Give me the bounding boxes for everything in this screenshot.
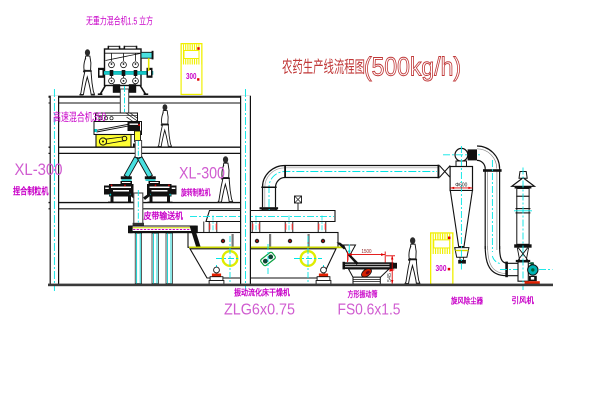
svg-text:FS0.6x1.5: FS0.6x1.5 bbox=[338, 302, 401, 319]
svg-text:捏合制粒机: 捏合制粒机 bbox=[13, 186, 49, 198]
svg-text:(500kg/h): (500kg/h) bbox=[364, 52, 461, 82]
svg-text:振动流化床干燥机: 振动流化床干燥机 bbox=[234, 287, 290, 298]
svg-text:无重力混合机1.5 立方: 无重力混合机1.5 立方 bbox=[86, 15, 153, 28]
svg-text:XL-300: XL-300 bbox=[15, 161, 63, 179]
svg-text:引风机: 引风机 bbox=[512, 295, 535, 305]
svg-text:方形振动筛: 方形振动筛 bbox=[348, 289, 378, 299]
svg-text:农药生产线流程图: 农药生产线流程图 bbox=[282, 58, 365, 77]
svg-text:545: 545 bbox=[387, 273, 393, 282]
svg-text:旋风除尘器: 旋风除尘器 bbox=[450, 296, 484, 306]
svg-text:Φ600: Φ600 bbox=[455, 183, 467, 189]
svg-text:高速混合机350: 高速混合机350 bbox=[53, 110, 106, 124]
svg-text:300: 300 bbox=[436, 264, 447, 273]
svg-text:1500: 1500 bbox=[362, 249, 372, 255]
svg-text:300: 300 bbox=[186, 72, 197, 81]
svg-text:皮带输送机: 皮带输送机 bbox=[143, 210, 183, 221]
svg-text:ZLG6x0.75: ZLG6x0.75 bbox=[224, 302, 295, 319]
svg-text:旋转制粒机: 旋转制粒机 bbox=[180, 188, 211, 198]
svg-text:XL-300: XL-300 bbox=[179, 165, 225, 183]
